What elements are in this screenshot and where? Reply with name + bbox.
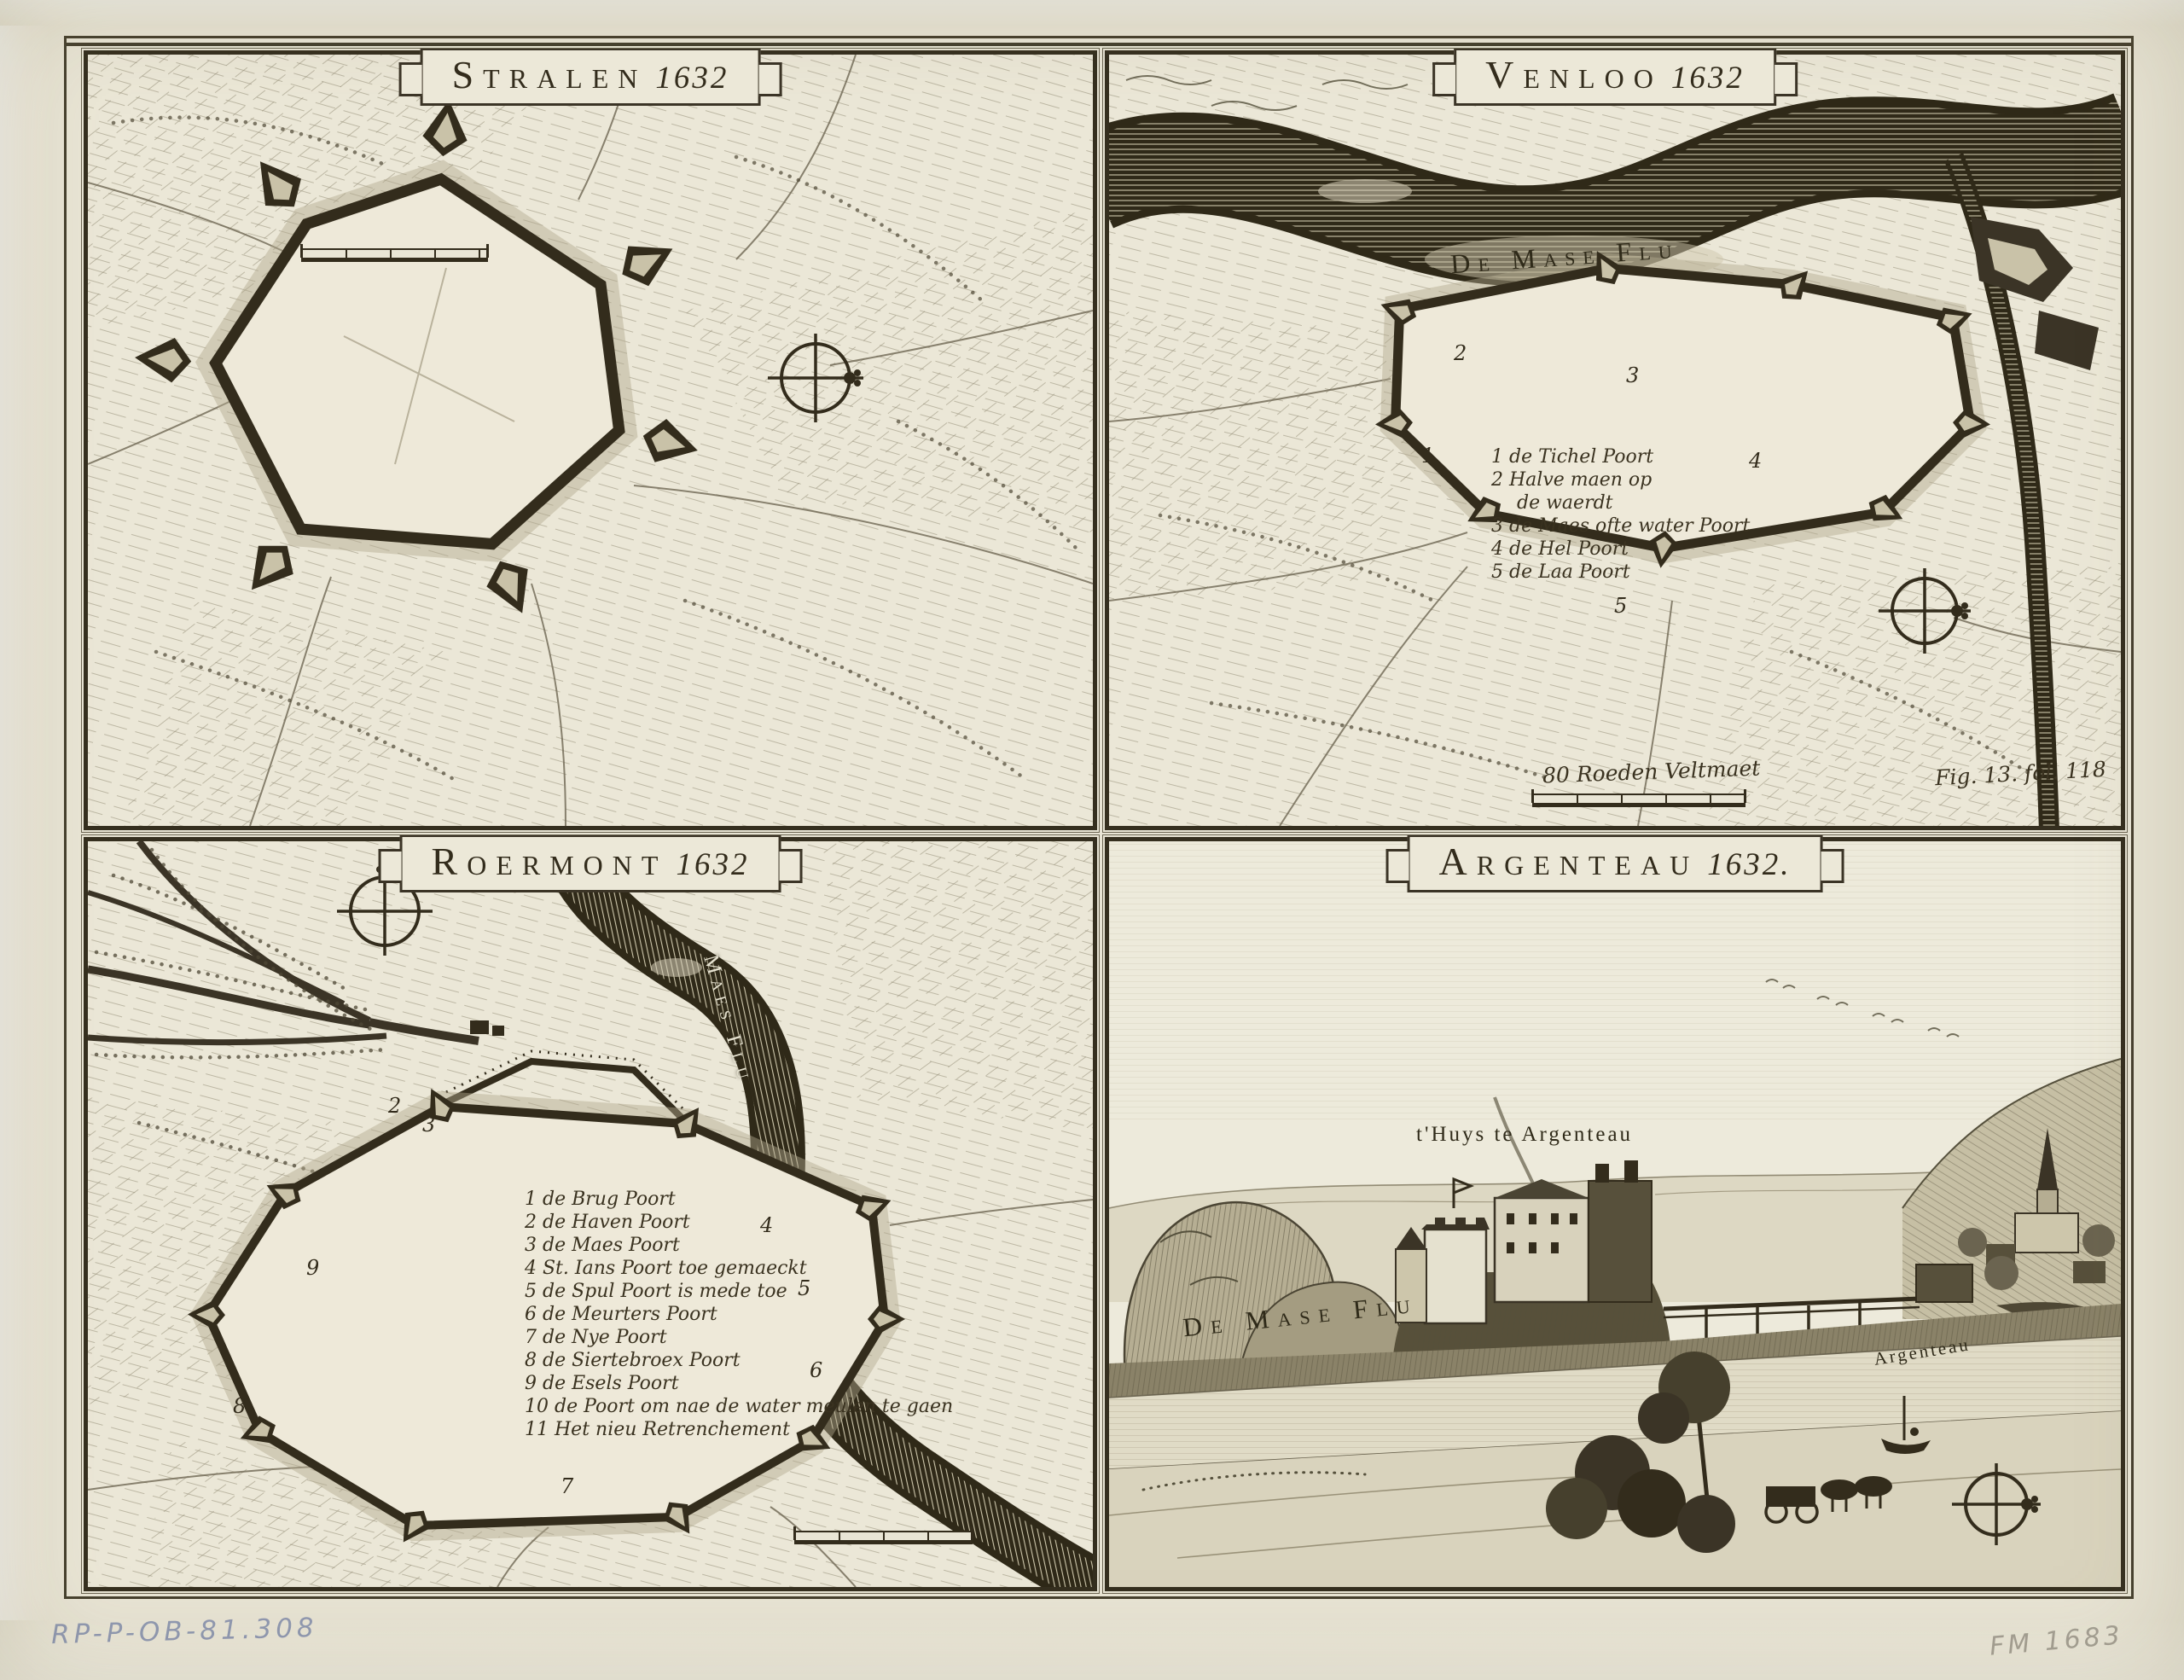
panel-title: Argenteau (1439, 840, 1699, 883)
title-banner-argenteau: Argenteau1632. (1408, 835, 1823, 892)
paper-edge (0, 0, 2184, 26)
legend-line: 10 de Poort om nae de water meulen te ga… (525, 1395, 953, 1418)
legend-line: 6 de Meurters Poort (525, 1303, 953, 1326)
legend-line: 11 Het nieu Retrenchement (525, 1418, 953, 1441)
plan-number: 2 (388, 1096, 401, 1116)
legend-line: 3 de Maes ofte water Poort (1491, 514, 1750, 538)
legend-line: de waerdt (1517, 491, 1750, 514)
plan-number: 1 (1421, 445, 1434, 466)
panel-roermont: Maes Flu 1 de Brug Poort 2 de Haven Poor… (84, 837, 1097, 1591)
plan-number: 8 (233, 1396, 246, 1416)
legend-line: 1 de Tichel Poort (1491, 445, 1750, 468)
panel-year: 1632 (676, 847, 749, 882)
scale-bar (1532, 793, 1745, 807)
plan-number: 5 (1614, 596, 1627, 616)
legend-line: 4 St. Ians Poort toe gemaeckt (525, 1257, 953, 1280)
legend-line: 5 de Spul Poort is mede toe (525, 1280, 953, 1303)
legend-line: 8 de Siertebroex Poort (525, 1349, 953, 1372)
legend-line: 2 Halve maen op (1491, 468, 1750, 491)
title-banner-roermont: Roermont1632 (400, 835, 781, 892)
plan-number: 7 (561, 1476, 573, 1497)
plan-number: 3 (1626, 365, 1639, 386)
panel-year: 1632 (655, 61, 729, 96)
title-banner-stralen: Stralen1632 (421, 49, 761, 106)
paper-edge (0, 0, 49, 1680)
plan-number: 4 (760, 1215, 773, 1235)
castle-label: t'Huys te Argenteau (1416, 1123, 1633, 1147)
panel-year: 1632 (1671, 61, 1745, 96)
venloo-map-engraving (1109, 55, 2121, 826)
panel-stralen: Stralen1632 (84, 50, 1097, 830)
legend-line: 5 de Laa Poort (1491, 561, 1750, 584)
engraved-plate: Stralen1632 (64, 36, 2134, 1599)
venloo-legend: 1 de Tichel Poort 2 Halve maen op de wae… (1491, 445, 1750, 584)
plan-number: 6 (810, 1360, 822, 1381)
plan-number: 4 (1749, 451, 1762, 471)
argenteau-view-engraving (1109, 841, 2121, 1587)
panel-argenteau: t'Huys te Argenteau De Mase Flu Argentea… (1105, 837, 2125, 1591)
panel-title: Roermont (432, 840, 668, 883)
plan-number: 2 (1454, 343, 1467, 363)
scale-bar (301, 248, 488, 262)
plan-number: 9 (306, 1258, 319, 1278)
title-banner-venloo: Venloo1632 (1454, 49, 1776, 106)
panel-year: 1632. (1707, 847, 1791, 882)
plan-number: 3 (422, 1114, 435, 1135)
legend-line: 3 de Maes Poort (525, 1234, 953, 1257)
plan-number: 5 (798, 1278, 810, 1299)
scale-bar (794, 1531, 973, 1544)
panel-title: Stralen (452, 53, 648, 96)
paper-edge (0, 1620, 2184, 1680)
roermont-legend: 1 de Brug Poort 2 de Haven Poort 3 de Ma… (525, 1188, 953, 1441)
legend-line: 1 de Brug Poort (525, 1188, 953, 1211)
legend-line: 7 de Nye Poort (525, 1326, 953, 1349)
stralen-map-engraving (88, 55, 1093, 826)
panel-title: Venloo (1485, 53, 1663, 96)
panel-venloo: De Mase Flu 1 de Tichel Poort 2 Halve ma… (1105, 50, 2125, 830)
legend-line: 4 de Hel Poort (1491, 538, 1750, 561)
legend-line: 2 de Haven Poort (525, 1211, 953, 1234)
legend-line: 9 de Esels Poort (525, 1372, 953, 1395)
